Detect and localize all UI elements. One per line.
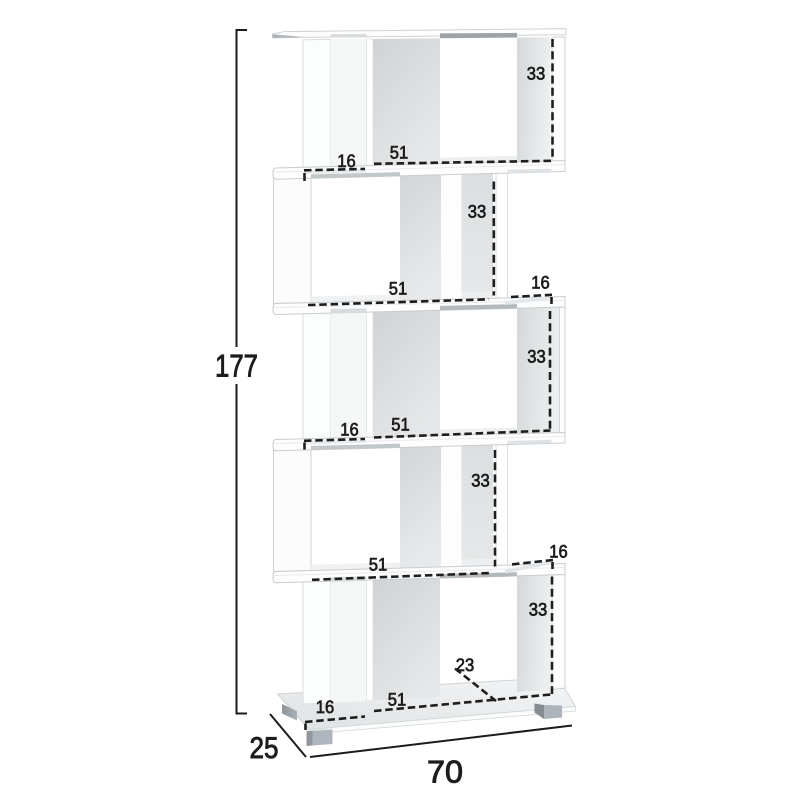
svg-text:51: 51 bbox=[391, 415, 410, 435]
svg-text:51: 51 bbox=[390, 143, 409, 163]
svg-text:51: 51 bbox=[388, 690, 407, 710]
svg-text:25: 25 bbox=[250, 732, 279, 765]
svg-text:33: 33 bbox=[471, 471, 490, 491]
svg-text:51: 51 bbox=[369, 555, 388, 575]
svg-text:16: 16 bbox=[337, 151, 356, 171]
svg-text:177: 177 bbox=[215, 348, 258, 384]
svg-text:16: 16 bbox=[531, 273, 550, 293]
svg-text:16: 16 bbox=[549, 542, 568, 562]
svg-text:33: 33 bbox=[527, 347, 546, 367]
svg-text:33: 33 bbox=[527, 64, 546, 84]
svg-text:16: 16 bbox=[316, 697, 335, 717]
svg-text:70: 70 bbox=[427, 754, 463, 790]
svg-text:33: 33 bbox=[468, 202, 487, 222]
svg-text:51: 51 bbox=[389, 279, 408, 299]
svg-text:16: 16 bbox=[340, 420, 359, 440]
svg-text:23: 23 bbox=[456, 655, 475, 675]
svg-text:33: 33 bbox=[529, 600, 548, 620]
